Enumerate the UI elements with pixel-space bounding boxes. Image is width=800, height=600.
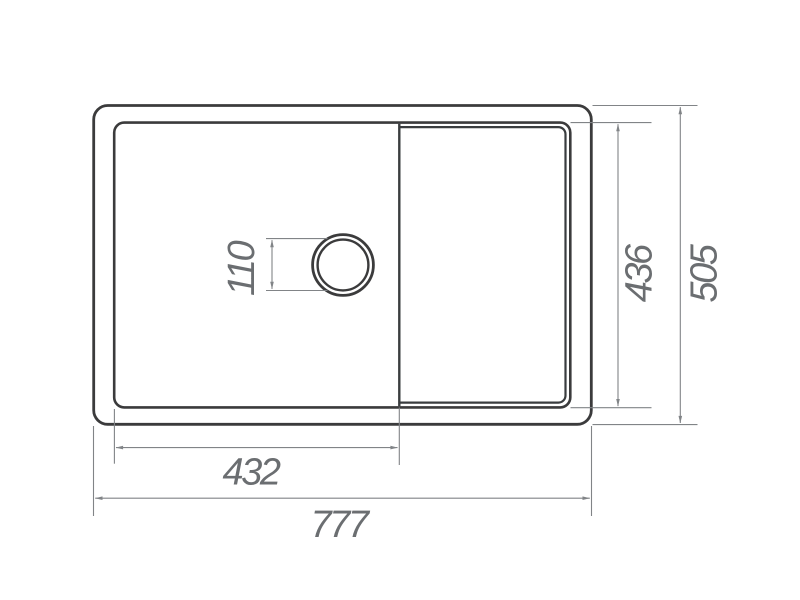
svg-text:777: 777 xyxy=(311,504,371,546)
svg-text:436: 436 xyxy=(619,243,661,302)
svg-text:432: 432 xyxy=(223,452,281,494)
svg-text:110: 110 xyxy=(221,240,263,295)
svg-text:505: 505 xyxy=(684,243,726,302)
